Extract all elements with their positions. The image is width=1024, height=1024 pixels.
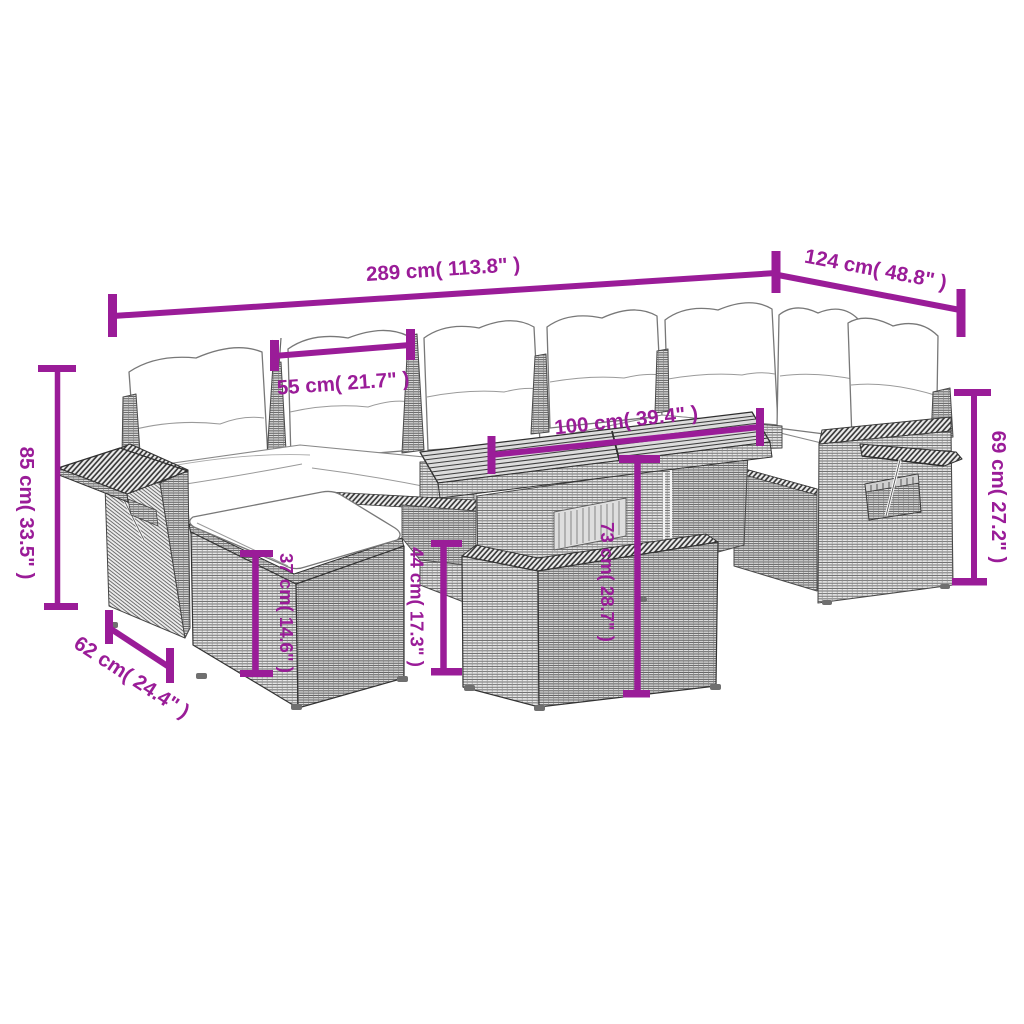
- svg-text:85 cm( 33.5" ): 85 cm( 33.5" ): [15, 447, 38, 580]
- svg-text:37 cm( 14.6" ): 37 cm( 14.6" ): [276, 553, 297, 673]
- svg-text:44 cm( 17.3" ): 44 cm( 17.3" ): [407, 547, 428, 667]
- svg-text:69 cm( 27.2" ): 69 cm( 27.2" ): [987, 431, 1010, 564]
- svg-text:73 cm( 28.7" ): 73 cm( 28.7" ): [597, 522, 618, 642]
